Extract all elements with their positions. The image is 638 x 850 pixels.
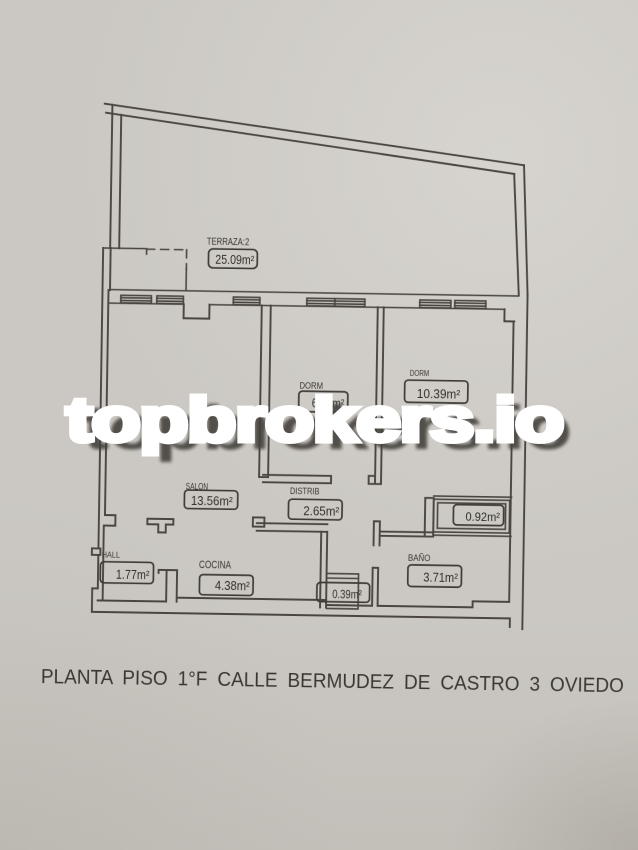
svg-text:HALL: HALL [102,550,121,559]
svg-text:COCINA: COCINA [199,559,232,572]
svg-text:1.77m²: 1.77m² [116,568,150,583]
svg-text:0.39m²: 0.39m² [332,587,362,601]
svg-text:BAÑO: BAÑO [408,553,431,564]
svg-text:3.71m²: 3.71m² [423,570,458,586]
svg-text:25.09m²: 25.09m² [215,252,255,268]
svg-text:4.38m²: 4.38m² [215,578,251,594]
svg-text:PLANTA PISO 1°F CALLE BERMUDEZ: PLANTA PISO 1°F CALLE BERMUDEZ DE CASTRO… [41,666,624,697]
svg-text:0.92m²: 0.92m² [465,510,500,525]
svg-text:13.56m²: 13.56m² [191,494,233,509]
svg-text:DISTRIB: DISTRIB [290,486,320,496]
svg-text:topbrokers.io: topbrokers.io [66,386,563,455]
svg-text:TERRAZA:2: TERRAZA:2 [207,236,250,249]
svg-text:DORM: DORM [410,368,430,378]
svg-text:2.65m²: 2.65m² [303,503,340,519]
